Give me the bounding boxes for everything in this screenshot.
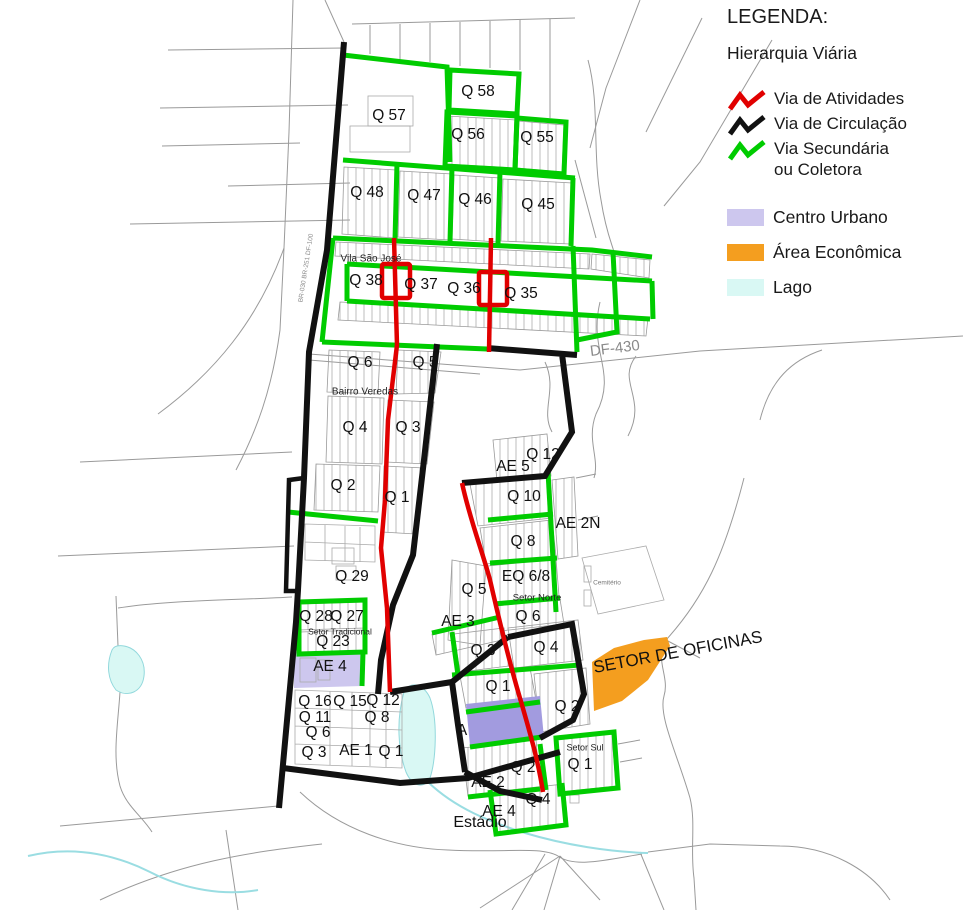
label-sn-q5: Q 5 [462,581,487,598]
label-bv-q5: Q 5 [413,354,438,371]
legend-item-via-atividades: Via de Atividades [727,88,961,112]
label-sn-q4: Q 4 [534,639,559,656]
legend-item-label: Via de Atividades [774,88,904,109]
background-road [58,546,294,556]
stream-outline [116,692,152,832]
legend-item-label: Via de Circulação [774,113,907,134]
via-atividades [489,238,491,352]
label-bv-q6: Q 6 [348,354,373,371]
lago-swatch [727,279,764,296]
lake-left [109,646,145,694]
label-bairro-veredas: Bairro Veredas [332,387,398,398]
label-eq-6-8: EQ 6/8 [502,568,550,585]
label-estadio: Estádio [453,814,506,831]
legend-subtitle: Hierarquia Viária [727,43,961,64]
label-q12-right: Q 12 [526,446,560,463]
legend-item-label-line2: ou Coletora [774,159,889,180]
background-road [118,597,292,608]
via-secundaria [498,171,500,244]
label-ae1: AE 1 [339,742,373,759]
background-road [620,758,642,762]
label-ss-q1: Q 1 [568,756,593,773]
label-q15: Q 15 [333,693,367,710]
label-a-mark: A [457,722,468,739]
background-road [646,18,702,132]
background-road [158,248,284,414]
label-q6-left: Q 6 [306,724,331,741]
background-road [80,452,292,462]
background-road [628,356,636,436]
label-sn-q2: Q 2 [555,698,580,715]
background-road [236,248,284,470]
label-q57: Q 57 [372,107,406,124]
background-road [576,474,596,478]
label-q8-right: Q 8 [511,533,536,550]
label-br-road: BR-030 BR-251 DF-100 [297,233,315,303]
background-road [116,596,118,646]
label-q23: Q 23 [316,633,350,650]
label-q46: Q 46 [458,191,492,208]
background-road [575,160,596,238]
label-q48: Q 48 [350,184,384,201]
label-vila-sao-jose: Vila São José [341,254,402,265]
background-road [160,105,348,108]
background-road [325,0,344,42]
background-road [512,854,545,910]
label-q29: Q 29 [335,568,369,585]
black-zigzag-icon [727,115,767,137]
legend-title: LEGENDA: [727,6,961,29]
background-road [590,0,640,148]
label-ae5: AE 5 [496,458,530,475]
background-road [640,852,664,910]
label-q45: Q 45 [521,196,555,213]
label-q3-left: Q 3 [302,744,327,761]
label-setor-sul: Setor Sul [566,742,603,752]
legend-item-label: Área Econômica [773,242,901,263]
background-road [226,830,238,910]
background-road [544,856,560,910]
background-road [648,844,890,900]
legend-item-label: Lago [773,277,812,298]
label-q47: Q 47 [407,187,441,204]
background-road [130,220,350,224]
label-q55: Q 55 [520,129,554,146]
via-secundaria [571,178,573,246]
legend: LEGENDA: Hierarquia Viária Via de Ativid… [727,6,961,312]
background-road [60,806,278,826]
background-road [162,143,300,146]
label-ae2n: AE 2N [556,515,601,532]
via-atividades-loop [479,272,507,305]
urban-hierarchy-map-page: Q 57Q 58Q 56Q 55Q 48Q 47Q 46Q 45Vila São… [0,0,963,910]
background-road [760,350,822,420]
legend-item-label: Via Secundária ou Coletora [774,138,889,181]
via-secundaria [652,281,653,319]
legend-item-area-economica: Área Econômica [727,242,961,263]
label-q38: Q 38 [349,272,383,289]
via-secundaria [362,652,363,686]
lake-main [399,685,435,785]
label-q8-left: Q 8 [365,709,390,726]
legend-item-via-circulacao: Via de Circulação [727,113,961,137]
label-q56: Q 56 [451,126,485,143]
legend-road-items: Via de Atividades Via de Circulação Via … [727,88,961,181]
label-q58: Q 58 [461,83,495,100]
label-bv-q1: Q 1 [385,489,410,506]
background-road [545,362,552,432]
via-secundaria [450,167,452,242]
background-road [284,0,293,248]
label-q28: Q 28 [299,608,333,625]
label-ae3: AE 3 [441,613,475,630]
background-road [352,18,575,24]
legend-item-label-line1: Via Secundária [774,138,889,159]
label-sn-q3: Q 3 [471,642,496,659]
legend-item-via-secundaria: Via Secundária ou Coletora [727,138,961,181]
label-q37: Q 37 [404,276,438,293]
label-bv-q3: Q 3 [396,419,421,436]
label-bv-q2: Q 2 [331,477,356,494]
city-block [452,175,500,242]
legend-area-items: Centro Urbano Área Econômica Lago [727,207,961,298]
via-secundaria [395,163,397,240]
label-sn-q1: Q 1 [486,678,511,695]
label-ss-q4: Q 4 [526,791,551,808]
lot-grid [305,524,375,562]
label-q27: Q 27 [330,608,364,625]
small-structure [570,795,579,803]
label-df-430: DF-430 [589,337,641,360]
label-q36: Q 36 [447,280,481,297]
background-road [168,48,345,50]
green-zigzag-icon [727,140,767,162]
label-cemiterio: Cemitério [593,580,621,587]
city-block [398,171,452,240]
label-ss-q2: Q 2 [511,759,536,776]
lot-outline [350,126,410,152]
area-economica-swatch [727,244,764,261]
via-secundaria [322,342,487,349]
label-q16: Q 16 [298,693,332,710]
label-setor-norte: Setor Norte [513,593,562,604]
red-zigzag-icon [727,90,767,112]
background-road [480,856,560,908]
label-q1-left: Q 1 [379,743,404,760]
label-sn-q6: Q 6 [516,608,541,625]
background-road [618,740,640,744]
label-ae4-left: AE 4 [313,658,347,675]
cemetery-building [584,590,591,606]
label-q12-left: Q 12 [366,692,400,709]
label-ae2: AE 2 [471,774,505,791]
label-q10: Q 10 [507,488,541,505]
label-q35: Q 35 [504,285,538,302]
city-block [342,167,396,238]
legend-item-centro-urbano: Centro Urbano [727,207,961,228]
centro-urbano-swatch [727,209,764,226]
stream-bottom-left [28,851,258,892]
legend-item-label: Centro Urbano [773,207,888,228]
legend-item-lago: Lago [727,277,961,298]
label-bv-q4: Q 4 [343,419,368,436]
